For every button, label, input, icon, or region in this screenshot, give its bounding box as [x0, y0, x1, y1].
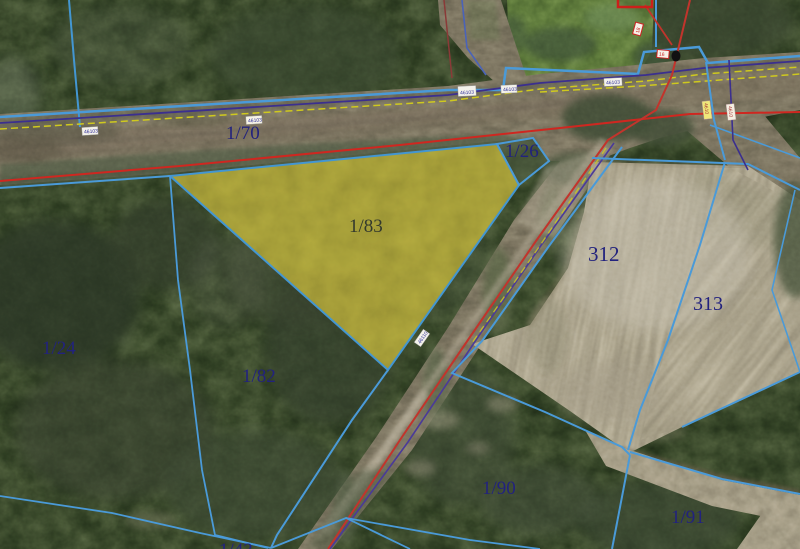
svg-text:1/24: 1/24	[42, 338, 76, 359]
svg-text:313: 313	[693, 293, 723, 315]
svg-text:1/91: 1/91	[671, 507, 705, 528]
svg-text:1/43: 1/43	[219, 540, 253, 549]
svg-text:46103: 46103	[503, 87, 517, 94]
svg-text:1/70: 1/70	[226, 123, 260, 144]
svg-text:46103: 46103	[84, 128, 99, 135]
svg-text:1/26: 1/26	[505, 141, 539, 162]
svg-text:1/90: 1/90	[482, 478, 516, 499]
svg-text:1/82: 1/82	[242, 366, 276, 387]
svg-text:16: 16	[659, 52, 665, 58]
svg-text:46103: 46103	[460, 90, 474, 97]
svg-text:312: 312	[588, 242, 620, 266]
svg-text:1/83: 1/83	[349, 216, 383, 237]
svg-text:46103: 46103	[606, 80, 620, 87]
